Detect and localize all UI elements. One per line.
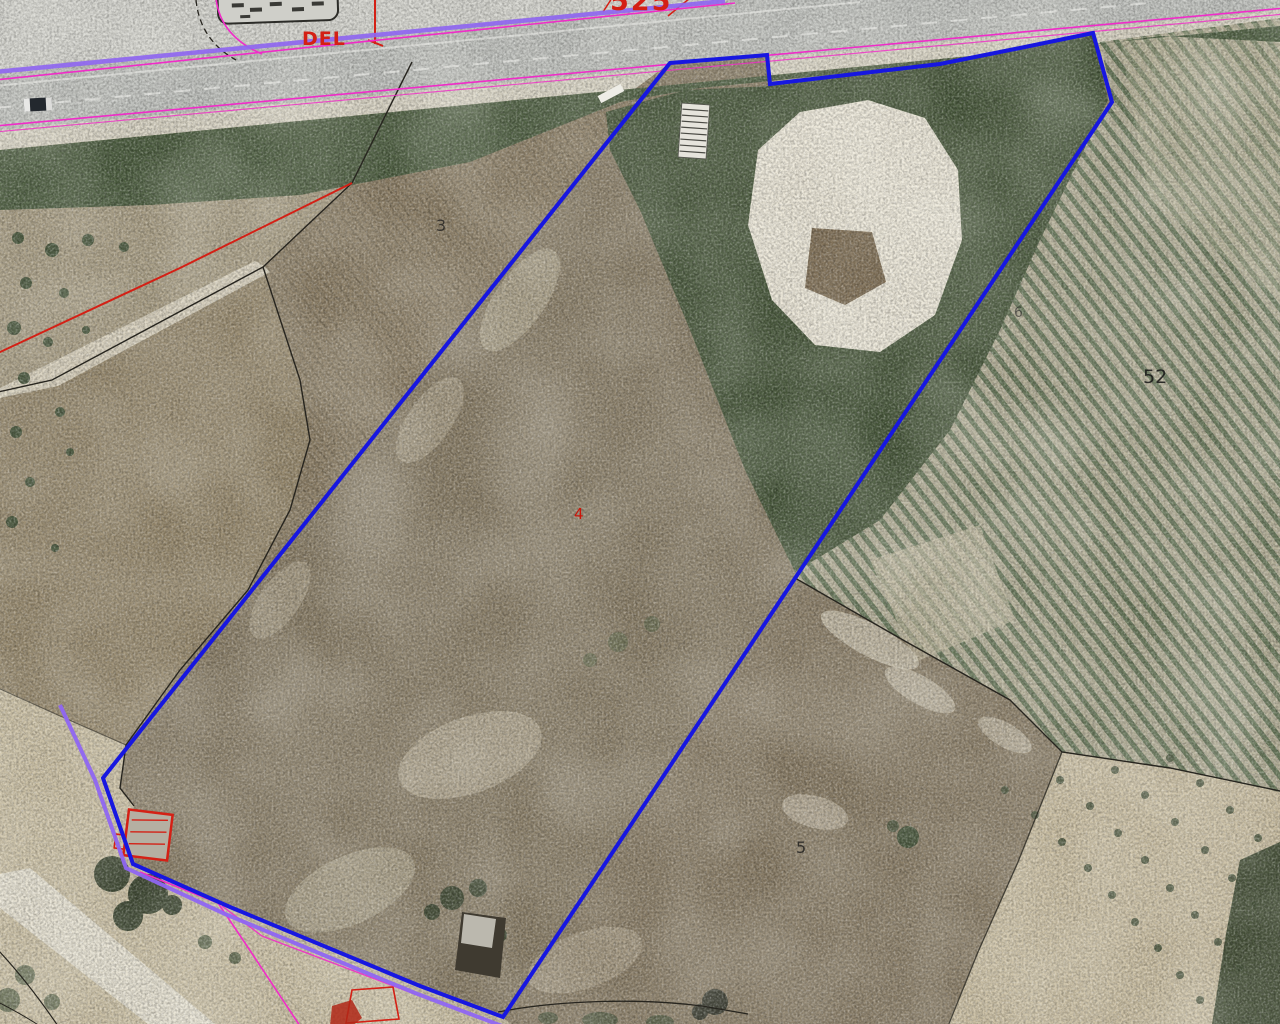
frame-structure bbox=[678, 103, 710, 159]
aerial-map-viewport: DEL 525 3 4 5 6 52 bbox=[0, 0, 1280, 1024]
shed bbox=[455, 912, 506, 978]
parcel-label-4: 4 bbox=[574, 505, 584, 523]
vehicle bbox=[24, 97, 53, 111]
parcel-label-6: 6 bbox=[1014, 305, 1023, 321]
road-text-label: DEL bbox=[302, 28, 346, 50]
parcel-label-5: 5 bbox=[796, 838, 806, 857]
parcel-label-52: 52 bbox=[1143, 366, 1167, 388]
parcel-label-3: 3 bbox=[436, 216, 446, 235]
aerial-map: DEL 525 3 4 5 6 52 bbox=[0, 0, 1280, 1024]
road-number-label: 525 bbox=[610, 0, 672, 17]
texture-coarse bbox=[0, 0, 1280, 1024]
building-footprint bbox=[217, 0, 339, 24]
